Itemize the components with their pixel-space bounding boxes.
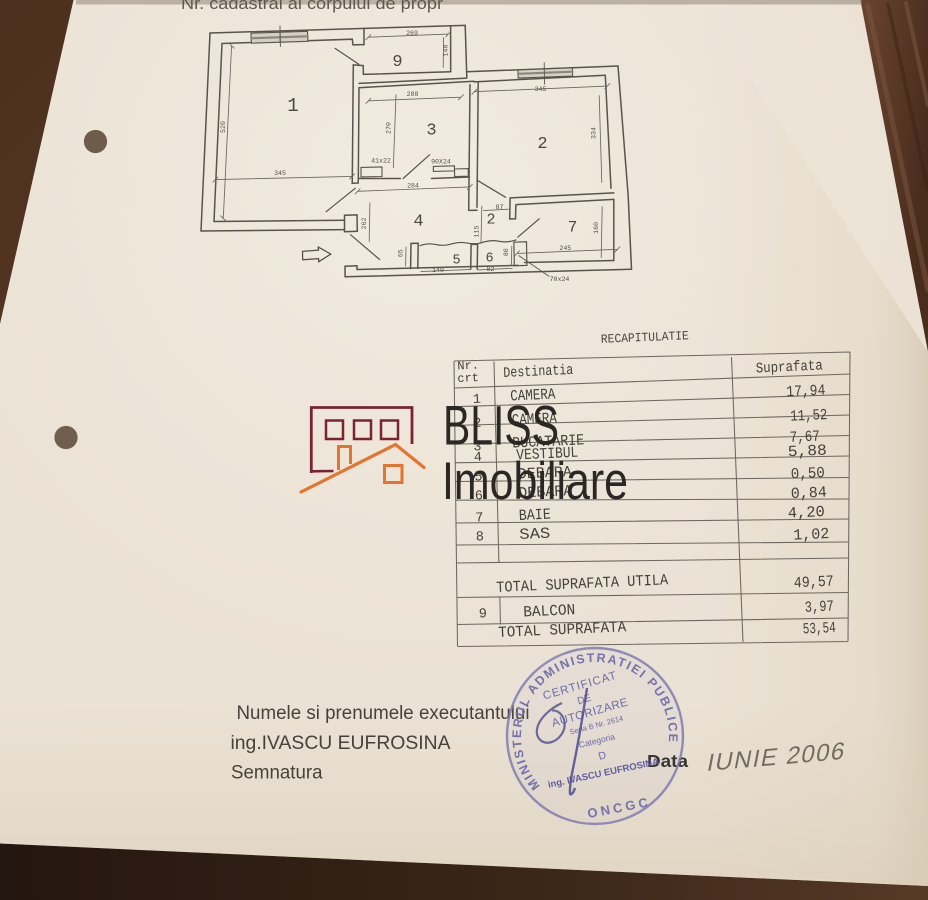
svg-text:9: 9: [479, 607, 488, 622]
svg-text:3,97: 3,97: [804, 598, 834, 617]
svg-text:70x24: 70x24: [550, 276, 570, 283]
svg-text:65: 65: [398, 249, 405, 257]
svg-text:BLISS: BLISS: [443, 394, 559, 457]
svg-text:269: 269: [406, 30, 418, 37]
svg-text:90X24: 90X24: [431, 158, 451, 165]
svg-text:49,57: 49,57: [793, 573, 834, 593]
svg-text:2: 2: [537, 135, 547, 154]
svg-text:crt: crt: [457, 371, 479, 386]
svg-text:Numele si prenumele executantu: Numele si prenumele executantului: [237, 702, 530, 724]
svg-text:284: 284: [407, 182, 419, 189]
svg-text:53,54: 53,54: [802, 619, 836, 638]
svg-text:7: 7: [568, 219, 578, 237]
svg-text:6: 6: [485, 252, 493, 267]
svg-text:288: 288: [407, 91, 419, 98]
svg-text:1: 1: [287, 95, 298, 117]
svg-text:80: 80: [503, 248, 510, 256]
svg-text:Semnatura: Semnatura: [231, 762, 323, 784]
svg-text:334: 334: [590, 127, 597, 139]
svg-text:BALCON: BALCON: [523, 601, 576, 621]
svg-text:140: 140: [432, 267, 444, 274]
svg-text:4,20: 4,20: [787, 503, 825, 523]
svg-text:0,84: 0,84: [790, 484, 827, 504]
svg-text:41x22: 41x22: [371, 157, 391, 164]
svg-text:0,50: 0,50: [790, 464, 825, 484]
svg-text:270: 270: [386, 122, 393, 134]
svg-text:9: 9: [392, 53, 402, 72]
svg-text:115: 115: [473, 226, 480, 238]
svg-text:520: 520: [220, 121, 227, 133]
svg-text:8: 8: [476, 530, 485, 545]
svg-text:3: 3: [426, 122, 436, 141]
svg-text:7: 7: [475, 511, 484, 526]
svg-text:Suprafata: Suprafata: [756, 358, 824, 377]
svg-text:148: 148: [442, 45, 449, 57]
svg-text:1,02: 1,02: [793, 525, 830, 545]
svg-text:SAS: SAS: [519, 525, 551, 544]
svg-text:2: 2: [486, 212, 495, 229]
svg-text:345: 345: [535, 86, 547, 93]
svg-text:245: 245: [559, 245, 571, 252]
svg-text:11,52: 11,52: [790, 406, 828, 426]
svg-text:17,94: 17,94: [786, 382, 826, 402]
svg-text:Imobiliare: Imobiliare: [442, 452, 628, 511]
svg-text:5,88: 5,88: [787, 442, 827, 462]
svg-text:ing.IVASCU EUFROSINA: ing.IVASCU EUFROSINA: [231, 732, 451, 754]
svg-text:87: 87: [496, 204, 504, 211]
svg-text:262: 262: [361, 217, 368, 229]
svg-text:Nr. cadastral al corpului de p: Nr. cadastral al corpului de propr: [181, 0, 443, 13]
svg-text:Destinatia: Destinatia: [503, 363, 574, 382]
svg-text:160: 160: [593, 222, 600, 234]
svg-text:4: 4: [413, 213, 423, 232]
svg-text:82: 82: [487, 266, 495, 273]
svg-text:345: 345: [274, 170, 286, 177]
svg-text:5: 5: [452, 254, 460, 269]
